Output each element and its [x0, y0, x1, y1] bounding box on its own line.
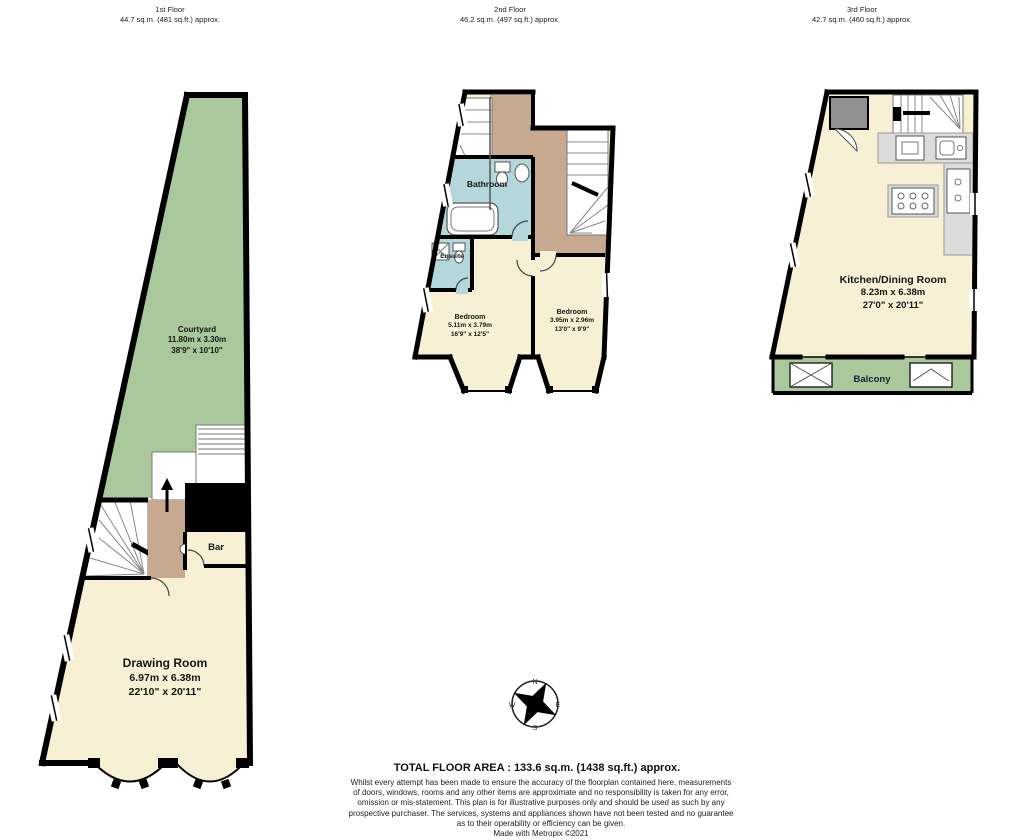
fridge-icon	[947, 169, 970, 213]
compass-n: N	[532, 679, 537, 686]
compass-e: E	[556, 702, 561, 709]
rooflight-icon	[910, 363, 952, 387]
floor-area: 46.2 sq.m. (497 sq.ft.) approx.	[410, 15, 610, 25]
kitchen-label: Kitchen/Dining Room 8.23m x 6.38m 27'0" …	[813, 273, 973, 313]
floor-title: 1st Floor	[70, 5, 270, 15]
chimney-void	[185, 483, 248, 532]
balcony-label: Balcony	[832, 374, 912, 385]
floor-header-first: 1st Floor 44.7 sq.m. (481 sq.ft.) approx…	[70, 5, 270, 25]
microwave-icon	[896, 136, 924, 160]
landing-right	[533, 130, 567, 255]
floorplan-page: 1st Floor 44.7 sq.m. (481 sq.ft.) approx…	[0, 0, 1024, 840]
floor-area: 44.7 sq.m. (481 sq.ft.) approx.	[70, 15, 270, 25]
sink-icon	[936, 137, 966, 159]
right-stairs	[567, 130, 608, 235]
bathroom-label: Bathroom	[447, 179, 527, 189]
floor-header-third: 3rd Floor 42.7 sq.m. (460 sq.ft.) approx…	[762, 5, 962, 25]
hob-icon	[892, 188, 934, 214]
drawing-room-label: Drawing Room 6.97m x 6.38m 22'10" x 20'1…	[85, 655, 245, 700]
second-floor-plan-drawing	[400, 85, 625, 405]
compass-s: S	[533, 725, 538, 732]
stairs	[893, 95, 963, 133]
bedroom-right-label: Bedroom 3.95m x 2.96m 13'0" x 9'9"	[527, 308, 617, 334]
cupboard	[830, 97, 868, 129]
floor-title: 3rd Floor	[762, 5, 962, 15]
total-floor-area: TOTAL FLOOR AREA : 133.6 sq.m. (1438 sq.…	[312, 762, 762, 774]
landing-top	[490, 95, 533, 160]
landing-stair-foot	[567, 235, 608, 255]
compass-w: W	[509, 702, 516, 709]
metropix-credit: Made with Metropix ©2021	[331, 829, 751, 839]
floor-title: 2nd Floor	[410, 5, 610, 15]
bar-door-gap	[187, 562, 204, 570]
bar-label: Bar	[196, 542, 236, 553]
compass-icon: N E S W	[503, 672, 567, 736]
bedroom-left-label: Bedroom 5.11m x 3.79m 16'9" x 12'5"	[425, 313, 515, 339]
third-floor-plan-drawing	[760, 85, 990, 410]
disclaimer: Whilst every attempt has been made to en…	[331, 778, 751, 839]
floor-header-second: 2nd Floor 46.2 sq.m. (497 sq.ft.) approx…	[410, 5, 610, 25]
ensuite-label: Ensuite	[428, 253, 476, 260]
floor-area: 42.7 sq.m. (460 sq.ft.) approx.	[762, 15, 962, 25]
courtyard-label: Courtyard 11.80m x 3.30m 38'9" x 10'10"	[137, 325, 257, 356]
rooflight-icon	[790, 363, 832, 387]
